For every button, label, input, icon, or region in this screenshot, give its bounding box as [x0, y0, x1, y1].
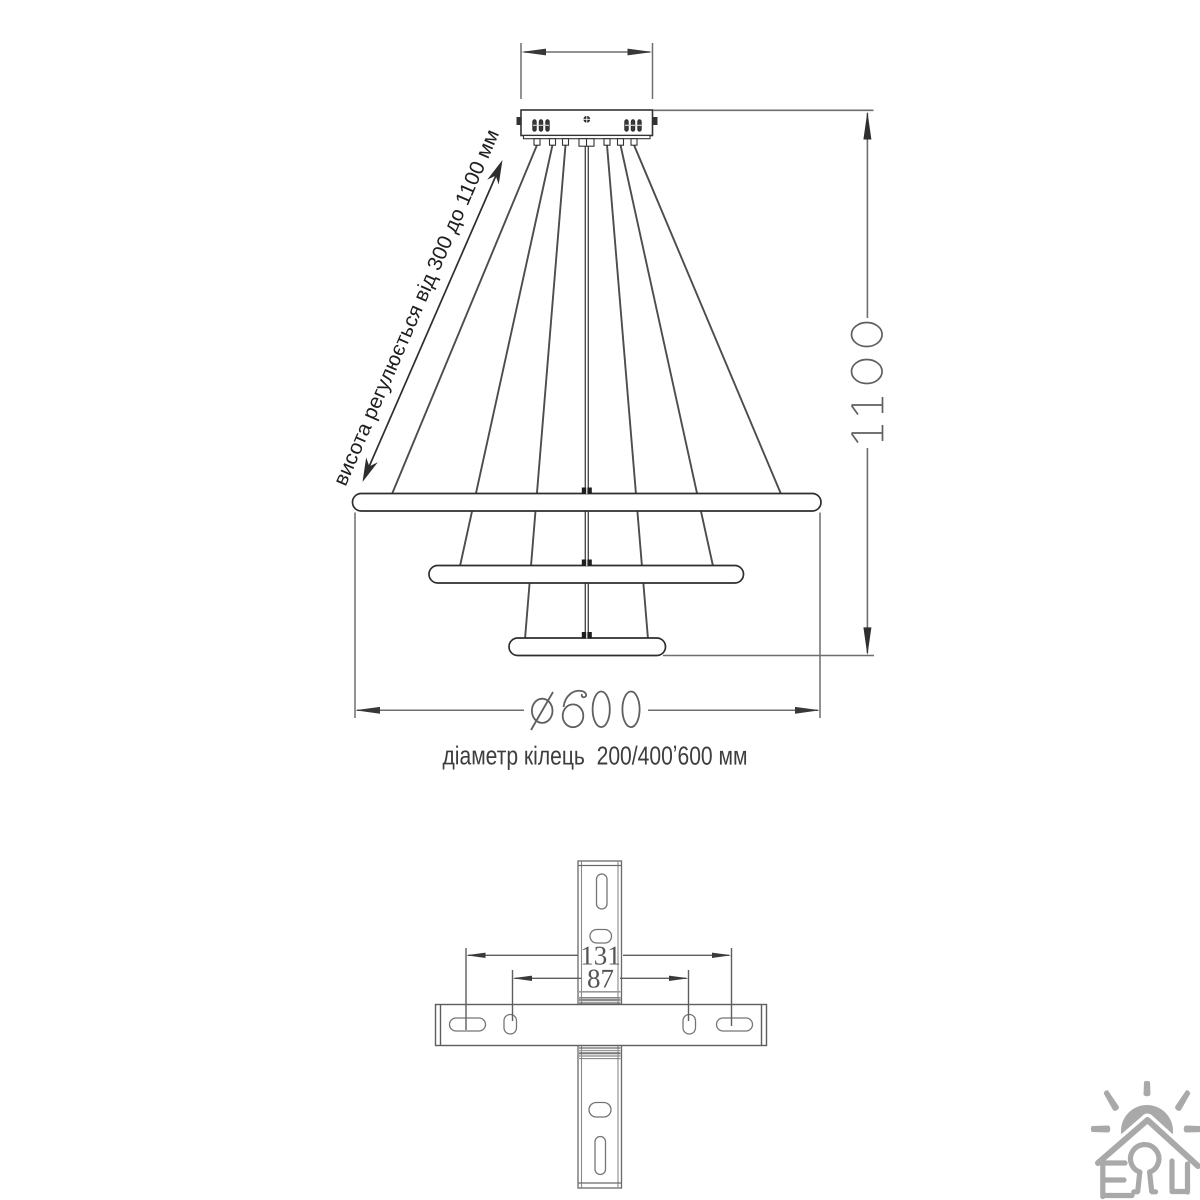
- svg-text:діаметр кілець 200/400ʼ600 мм: діаметр кілець 200/400ʼ600 мм: [442, 740, 747, 770]
- svg-text:87: 87: [587, 963, 614, 993]
